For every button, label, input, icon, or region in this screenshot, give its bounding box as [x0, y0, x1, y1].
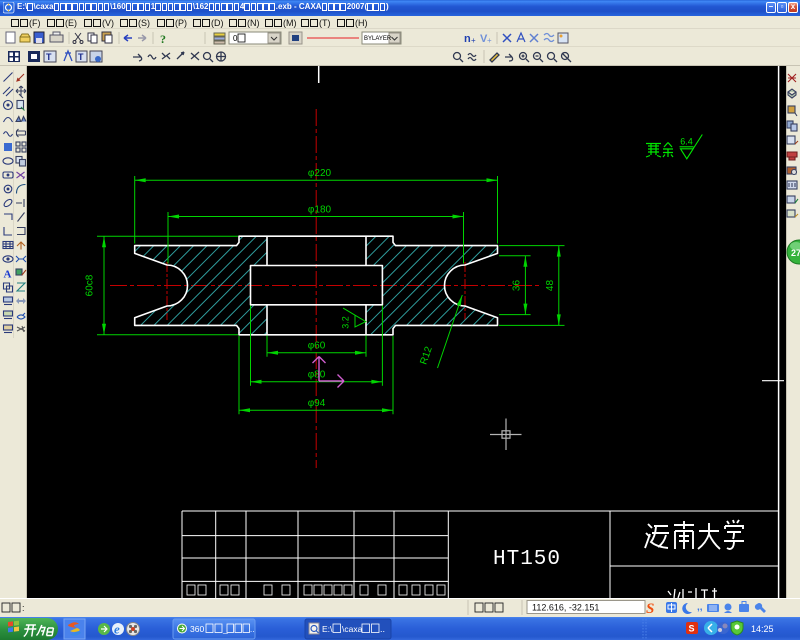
svg-text:3.2: 3.2 [341, 316, 351, 329]
svg-text:n: n [464, 33, 471, 45]
svg-text:6.4: 6.4 [680, 137, 693, 147]
svg-text:T: T [78, 52, 84, 62]
svg-text:E:\: E:\ [322, 624, 333, 634]
svg-text:T: T [46, 52, 52, 62]
svg-text:0: 0 [233, 34, 238, 43]
svg-text:φ80: φ80 [308, 370, 326, 381]
svg-text:φ220: φ220 [308, 168, 332, 179]
svg-text:48: 48 [545, 280, 556, 292]
svg-text:?: ? [160, 32, 166, 46]
svg-text:36: 36 [512, 280, 523, 292]
svg-text:27: 27 [791, 248, 800, 258]
svg-text:S: S [689, 624, 695, 634]
svg-text::: : [22, 603, 25, 613]
svg-text:BYLAYER: BYLAYER [364, 36, 392, 42]
svg-text:+: + [487, 36, 492, 45]
svg-text:14:25: 14:25 [751, 624, 774, 634]
svg-text:\caxa: \caxa [342, 624, 363, 634]
svg-text:HT150: HT150 [493, 548, 561, 571]
svg-text:..: .. [380, 624, 385, 634]
svg-text:A: A [4, 269, 12, 281]
svg-text:φ94: φ94 [308, 398, 326, 409]
svg-text:,,: ,, [697, 602, 703, 613]
svg-text:φ180: φ180 [308, 205, 332, 216]
svg-text:360: 360 [190, 624, 204, 634]
svg-text:+: + [471, 36, 476, 45]
svg-text:S: S [646, 601, 654, 617]
svg-text:R12: R12 [418, 345, 435, 366]
svg-text:φ60: φ60 [308, 341, 326, 352]
svg-text:112.616, -32.151: 112.616, -32.151 [532, 603, 599, 613]
svg-text:60c8: 60c8 [85, 274, 96, 296]
svg-text:..: .. [250, 625, 254, 634]
svg-text:e: e [114, 622, 120, 637]
